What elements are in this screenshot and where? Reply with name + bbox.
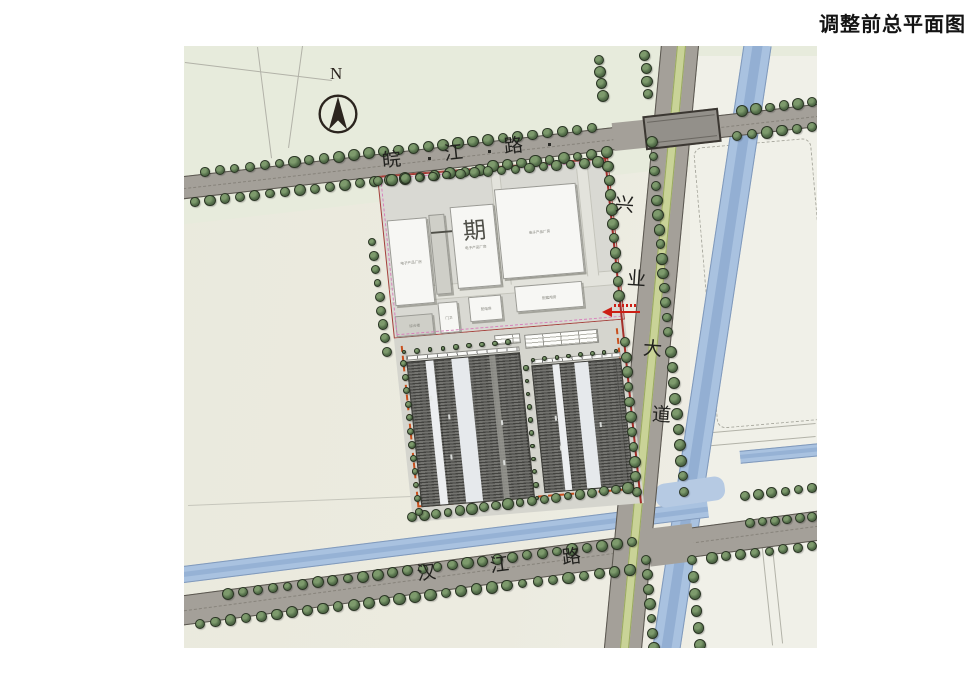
tree-icon <box>471 583 483 595</box>
tree-icon <box>765 547 774 556</box>
tree-icon <box>579 571 589 581</box>
tree-icon <box>317 603 329 615</box>
entrance-marker-text <box>614 304 638 307</box>
tree-icon <box>256 611 267 622</box>
roof-mark <box>560 445 563 450</box>
tree-icon <box>539 162 548 171</box>
tree-icon <box>415 508 422 515</box>
parcel-aisle <box>552 364 572 490</box>
building-label: 门卫 <box>445 314 453 320</box>
tree-icon <box>665 346 677 358</box>
tree-icon <box>643 584 654 595</box>
tree-icon <box>393 593 406 606</box>
building-label: 综合楼 <box>409 322 420 328</box>
tree-icon <box>382 347 392 357</box>
tree-icon <box>447 560 457 570</box>
road-label-char: 汉 <box>416 563 437 584</box>
tree-icon <box>363 597 375 609</box>
tree-icon <box>406 414 413 421</box>
tree-icon <box>795 513 805 523</box>
tree-icon <box>693 622 704 633</box>
tree-icon <box>461 557 473 569</box>
tree-icon <box>511 165 520 174</box>
tree-icon <box>374 279 382 287</box>
tree-icon <box>647 614 656 623</box>
small-building: 门卫 <box>437 301 460 334</box>
roof-mark <box>503 460 506 465</box>
parcel-aisle <box>574 362 601 489</box>
tree-icon <box>753 489 764 500</box>
site-plan-canvas: 皖 江 路 兴 业 大 道 汉 江 路 电子产品厂房 电子产品厂房 <box>184 46 817 648</box>
roof-mark <box>555 416 558 421</box>
road-tick <box>488 150 491 153</box>
tree-icon <box>807 97 817 107</box>
tree-icon <box>551 493 561 503</box>
tree-icon <box>415 173 424 182</box>
tree-icon <box>620 337 630 347</box>
tree-icon <box>348 149 360 161</box>
tree-icon <box>575 489 585 499</box>
tree-icon <box>624 564 636 576</box>
tree-icon <box>348 599 360 611</box>
tree-icon <box>750 548 760 558</box>
tree-icon <box>363 147 375 159</box>
tree-icon <box>441 346 446 351</box>
tree-icon <box>241 613 251 623</box>
tree-icon <box>656 253 667 264</box>
tree-icon <box>706 552 717 563</box>
tree-icon <box>592 156 603 167</box>
tree-icon <box>611 485 621 495</box>
tree-icon <box>674 439 686 451</box>
tree-icon <box>482 134 494 146</box>
tree-icon <box>502 498 514 510</box>
road-label-char: 皖 <box>381 150 402 171</box>
tree-icon <box>486 581 499 594</box>
tree-icon <box>372 569 384 581</box>
entrance-arrow-line <box>612 311 640 313</box>
tree-icon <box>642 569 653 580</box>
tree-icon <box>491 501 500 510</box>
tree-icon <box>501 580 513 592</box>
tree-icon <box>607 218 619 230</box>
tree-icon <box>548 575 558 585</box>
tree-icon <box>412 468 418 474</box>
tree-icon <box>750 103 762 115</box>
tree-icon <box>343 574 353 584</box>
road-label-char: 道 <box>651 405 671 425</box>
tree-icon <box>644 598 656 610</box>
tree-icon <box>369 251 379 261</box>
tree-icon <box>671 408 683 420</box>
tree-icon <box>610 247 622 259</box>
tree-icon <box>527 130 537 140</box>
tree-icon <box>651 195 662 206</box>
north-arrow-icon <box>316 92 360 136</box>
tree-icon <box>444 508 453 517</box>
tree-icon <box>195 619 206 630</box>
tree-icon <box>310 184 320 194</box>
tree-icon <box>479 342 484 347</box>
tree-icon <box>516 498 525 507</box>
tree-icon <box>648 642 660 648</box>
tree-icon <box>792 124 802 134</box>
phase2-parcel-east <box>531 358 634 493</box>
tree-icon <box>533 482 538 487</box>
tree-icon <box>523 365 528 370</box>
tree-icon <box>659 283 670 294</box>
tree-icon <box>492 341 497 346</box>
tree-icon <box>531 457 536 462</box>
tree-icon <box>190 197 200 207</box>
tree-icon <box>629 456 641 468</box>
tree-icon <box>694 639 706 648</box>
tree-icon <box>204 195 215 206</box>
tree-icon <box>622 366 633 377</box>
drawing-sheet: 调整前总平面图 <box>0 0 980 693</box>
tree-icon <box>649 152 658 161</box>
tree-icon <box>551 160 562 171</box>
tree-icon <box>260 160 270 170</box>
tree-icon <box>596 540 608 552</box>
tree-icon <box>687 555 697 565</box>
tree-icon <box>609 233 619 243</box>
tree-icon <box>557 126 568 137</box>
building-label: 电子产品厂房 <box>528 227 550 234</box>
tree-icon <box>654 224 666 236</box>
tree-icon <box>594 568 605 579</box>
tree-icon <box>781 487 790 496</box>
tree-icon <box>368 238 377 247</box>
tree-icon <box>663 327 673 337</box>
tree-icon <box>555 355 559 359</box>
tree-icon <box>667 362 678 373</box>
tree-icon <box>288 156 301 169</box>
tree-icon <box>604 175 615 186</box>
tree-icon <box>793 543 803 553</box>
tree-icon <box>466 343 471 348</box>
tree-icon <box>466 503 477 514</box>
tree-icon <box>409 591 421 603</box>
tree-icon <box>357 571 369 583</box>
tree-icon <box>375 292 385 302</box>
factory-building: 电子产品厂房 <box>387 217 436 306</box>
tree-icon <box>622 482 633 493</box>
tree-icon <box>779 100 790 111</box>
tree-icon <box>643 89 653 99</box>
tree-icon <box>691 605 702 616</box>
tree-icon <box>613 290 625 302</box>
tree-icon <box>688 571 699 582</box>
tree-icon <box>529 430 534 435</box>
tree-icon <box>807 512 817 522</box>
tree-icon <box>469 167 480 178</box>
tree-icon <box>669 393 681 405</box>
tree-icon <box>651 181 661 191</box>
tree-icon <box>597 90 609 102</box>
tree-icon <box>792 98 804 110</box>
roof-mark <box>450 454 453 459</box>
tree-icon <box>505 339 510 344</box>
tree-icon <box>601 146 612 157</box>
tree-icon <box>253 585 263 595</box>
tree-icon <box>807 122 817 132</box>
tree-icon <box>386 174 398 186</box>
tree-icon <box>533 576 544 587</box>
parcel-aisle <box>425 360 448 504</box>
tree-icon <box>225 614 237 626</box>
roof-mark <box>599 422 602 427</box>
phase1-area: 电子产品厂房 电子产品厂房 电子产品厂房 配套用房 综合楼 门卫 <box>377 157 625 339</box>
building-label: 电子产品厂房 <box>400 258 422 265</box>
parcel-aisle <box>451 358 483 503</box>
small-building: 配电房 <box>468 295 503 323</box>
tree-icon <box>530 444 535 449</box>
phase2-parcel-west <box>406 352 535 507</box>
tree-icon <box>428 172 438 182</box>
road-label-char: 兴 <box>614 195 634 215</box>
tree-icon <box>562 572 574 584</box>
tree-icon <box>542 128 553 139</box>
tree-icon <box>627 427 637 437</box>
support-building: 配套用房 <box>514 281 584 312</box>
tree-icon <box>641 63 652 74</box>
tree-icon <box>280 187 290 197</box>
building-label: 配电房 <box>480 305 491 311</box>
tree-icon <box>453 344 458 349</box>
tree-icon <box>268 583 278 593</box>
tree-icon <box>641 76 652 87</box>
roof-mark <box>448 414 451 419</box>
entrance-arrow-icon <box>602 307 612 317</box>
tree-icon <box>776 125 787 136</box>
tree-icon <box>380 333 390 343</box>
tree-icon <box>572 125 582 135</box>
canal-deep-stripe <box>740 447 817 459</box>
parcel-aisle <box>489 355 510 499</box>
tree-icon <box>245 162 255 172</box>
tree-icon <box>624 382 634 392</box>
tree-icon <box>527 404 532 409</box>
tree-icon <box>333 151 345 163</box>
road-tick <box>548 143 551 146</box>
road-label-char: 路 <box>503 136 524 157</box>
tree-icon <box>540 495 549 504</box>
tree-icon <box>405 401 412 408</box>
tree-icon <box>265 189 275 199</box>
tree-icon <box>455 585 468 598</box>
tree-icon <box>518 579 528 589</box>
tree-icon <box>602 350 607 355</box>
tree-icon <box>761 126 774 139</box>
building-label: 配套用房 <box>542 293 557 300</box>
tree-icon <box>379 595 390 606</box>
road-tick <box>428 157 431 160</box>
tree-icon <box>579 158 590 169</box>
tree-icon <box>668 377 680 389</box>
road-label-char: 业 <box>626 269 646 289</box>
tree-icon <box>271 609 283 621</box>
tree-icon <box>611 538 622 549</box>
tree-icon <box>807 483 817 493</box>
parcel-line <box>188 496 415 506</box>
tree-icon <box>524 163 535 174</box>
small-building: 综合楼 <box>395 313 435 337</box>
tree-icon <box>414 348 420 354</box>
tree-icon <box>302 605 313 616</box>
tree-icon <box>528 417 534 423</box>
tree-icon <box>621 352 632 363</box>
tree-icon <box>319 153 330 164</box>
tree-icon <box>431 509 441 519</box>
roof-mark <box>430 396 433 401</box>
tree-icon <box>609 566 620 577</box>
tree-icon <box>745 518 755 528</box>
factory-building: 电子产品厂房 <box>494 183 585 279</box>
tree-icon <box>629 442 639 452</box>
tree-icon <box>286 606 298 618</box>
road-label-char: 大 <box>642 339 662 359</box>
drawing-title: 调整前总平面图 <box>819 8 966 37</box>
tree-icon <box>376 306 386 316</box>
tree-icon <box>210 617 221 628</box>
tree-icon <box>537 548 548 559</box>
tree-icon <box>483 166 494 177</box>
tree-icon <box>770 516 780 526</box>
tree-icon <box>662 313 672 323</box>
tree-icon <box>590 351 595 356</box>
tree-icon <box>673 424 684 435</box>
road-label-char: 路 <box>561 547 582 568</box>
tree-icon <box>477 556 488 567</box>
tree-icon <box>378 319 388 329</box>
tree-icon <box>408 143 419 154</box>
tree-icon <box>371 265 380 274</box>
road-label-char: 江 <box>443 143 464 164</box>
tree-icon <box>200 167 209 176</box>
tree-icon <box>613 276 623 286</box>
road-label-char: 江 <box>489 555 510 576</box>
tree-icon <box>424 589 437 602</box>
north-label: N <box>330 64 342 84</box>
tree-icon <box>455 169 466 180</box>
phase1-label: 一期 <box>428 210 497 249</box>
tree-icon <box>765 103 775 113</box>
roof-mark <box>501 420 504 425</box>
tree-icon <box>333 601 344 612</box>
tree-icon <box>441 588 451 598</box>
tree-icon <box>408 441 416 449</box>
